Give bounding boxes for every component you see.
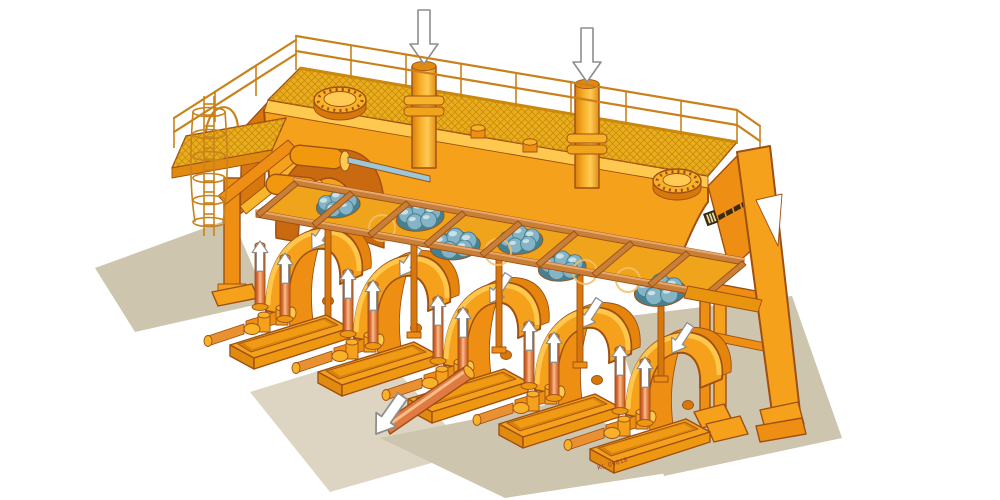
technical-illustration-canvas: KL 09818 — [0, 0, 1000, 500]
manhole-cover-right — [653, 169, 701, 200]
machine-illustration: KL 09818 — [0, 0, 1000, 500]
shadow-left — [95, 218, 268, 332]
flow-down-arrow-icon — [573, 28, 601, 82]
manhole-cover-left — [314, 87, 366, 120]
